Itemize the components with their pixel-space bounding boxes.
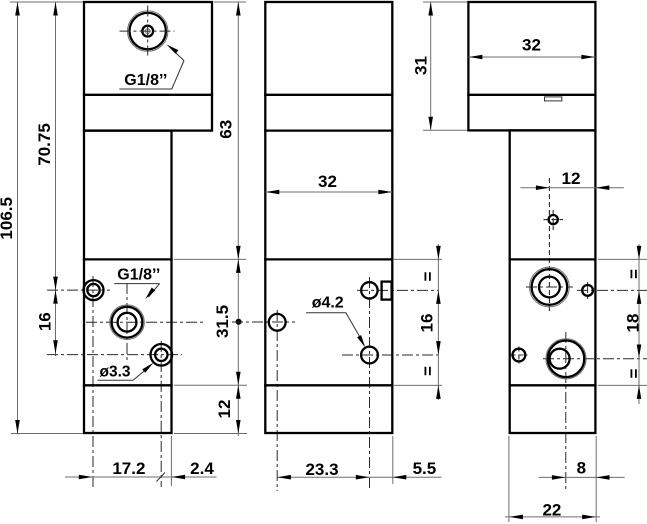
svg-text:ø3.3: ø3.3 bbox=[99, 364, 130, 381]
svg-text:16: 16 bbox=[36, 312, 55, 331]
svg-text:12: 12 bbox=[562, 169, 581, 188]
svg-text:12: 12 bbox=[215, 400, 234, 419]
svg-text:32: 32 bbox=[318, 172, 337, 191]
svg-text:31: 31 bbox=[412, 56, 431, 75]
svg-text:70.75: 70.75 bbox=[35, 123, 54, 166]
svg-text:=: = bbox=[625, 269, 644, 279]
svg-text:G1/8’’: G1/8’’ bbox=[124, 72, 167, 89]
svg-text:=: = bbox=[625, 368, 644, 378]
svg-text:63: 63 bbox=[216, 120, 235, 139]
svg-text:23.3: 23.3 bbox=[305, 460, 338, 479]
svg-text:32: 32 bbox=[522, 36, 541, 55]
svg-text:22: 22 bbox=[542, 501, 561, 520]
svg-text:31.5: 31.5 bbox=[213, 305, 232, 338]
svg-text:18: 18 bbox=[624, 314, 643, 333]
svg-text:8: 8 bbox=[577, 458, 586, 477]
svg-text:17.2: 17.2 bbox=[112, 459, 145, 478]
svg-text:106.5: 106.5 bbox=[0, 197, 16, 240]
svg-text:5.5: 5.5 bbox=[413, 459, 437, 478]
svg-text:ø4.2: ø4.2 bbox=[312, 295, 344, 312]
svg-text:=: = bbox=[419, 271, 438, 281]
svg-text:16: 16 bbox=[418, 314, 437, 333]
svg-text:G1/8’’: G1/8’’ bbox=[117, 266, 160, 283]
svg-text:2.4: 2.4 bbox=[190, 459, 214, 478]
svg-text:=: = bbox=[419, 366, 438, 376]
